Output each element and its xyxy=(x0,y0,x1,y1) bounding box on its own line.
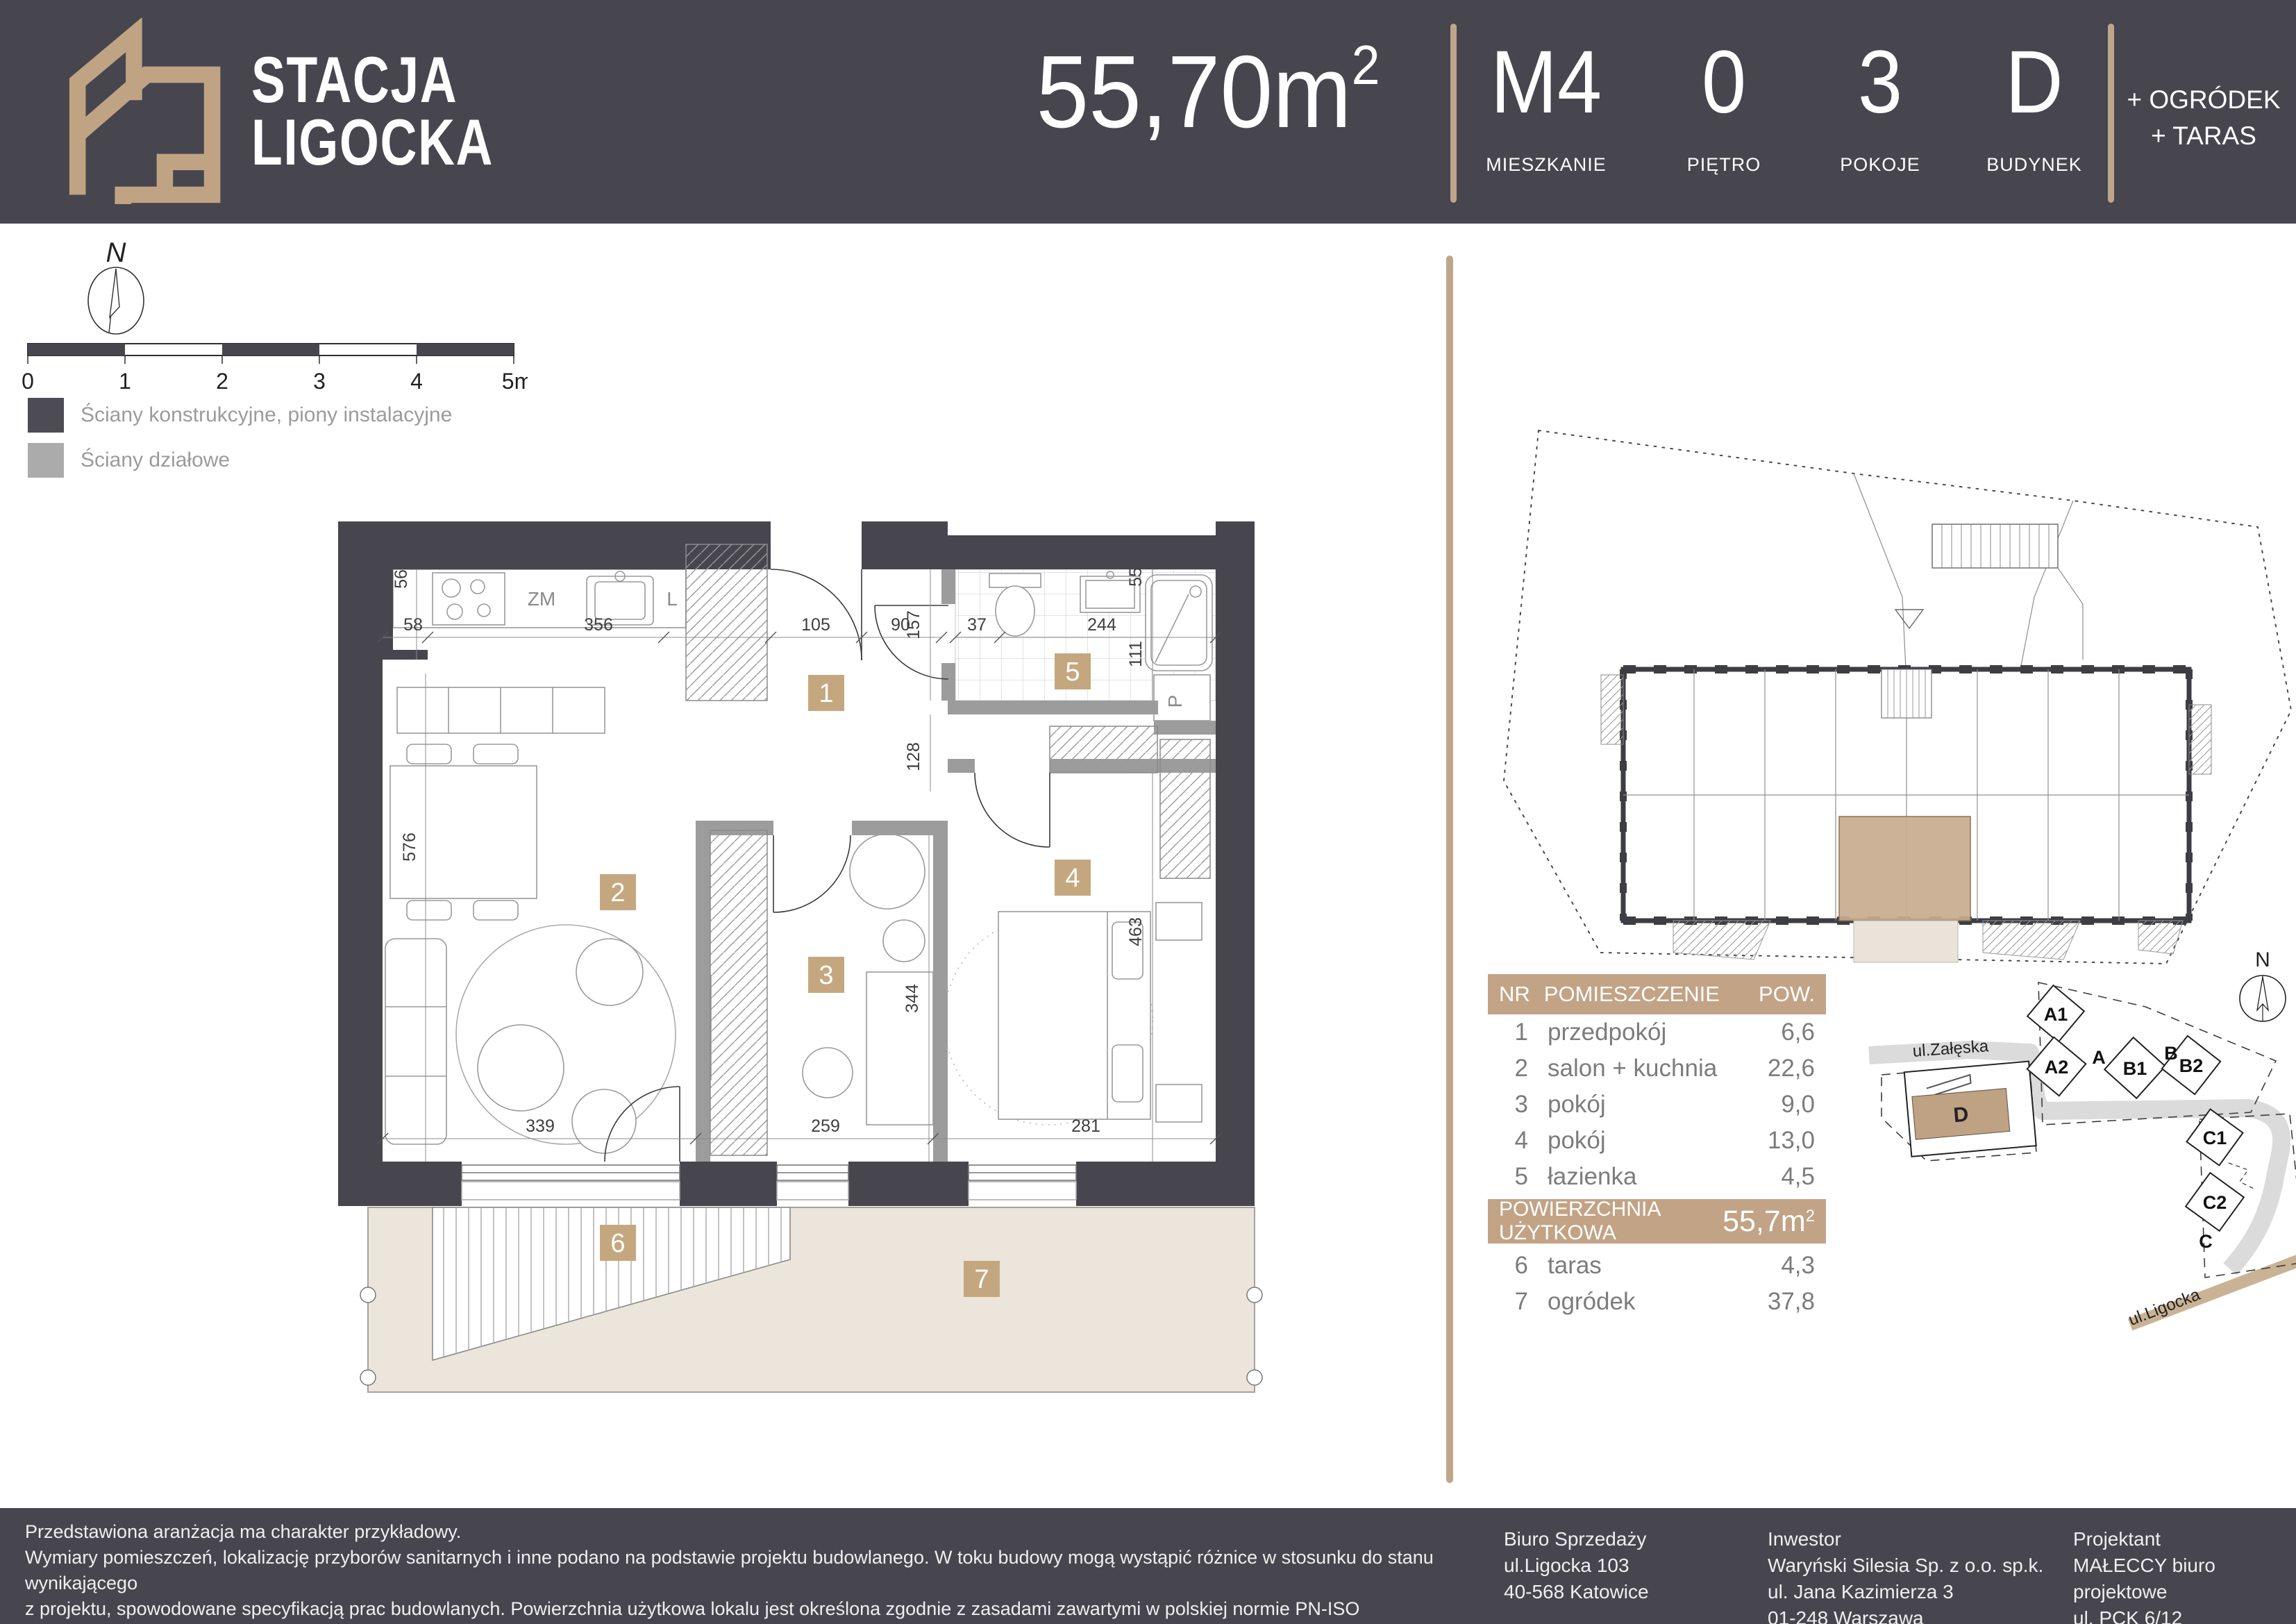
sofa xyxy=(385,939,446,1144)
row-name: pokój xyxy=(1548,1127,1606,1155)
row-name: pokój xyxy=(1548,1091,1606,1119)
row-nr: 1 xyxy=(1499,1019,1528,1046)
usable-area-sup: 2 xyxy=(1806,1207,1815,1225)
legend-partition-walls: Ściany działowe xyxy=(28,443,230,478)
site-location-map: D A1 A A2 B B1 B2 C1 C2 C ul.Załęska ul.… xyxy=(1868,944,2296,1409)
dim-55: 55 xyxy=(1126,567,1146,587)
apartment-area-title: 55,70m2 xyxy=(1023,33,1393,151)
flat-card-page: STACJA LIGOCKA 55,70m2 M4 MIESZKANIE 0 P… xyxy=(0,0,2296,1624)
designer-block: Projektant MAŁECCY biuro projektowe ul. … xyxy=(2073,1526,2296,1624)
desk xyxy=(866,972,933,1125)
map-compass-n: N xyxy=(2255,948,2270,971)
map-compass-icon: N xyxy=(2240,948,2286,1021)
designer-line: MAŁECCY biuro projektowe xyxy=(2073,1552,2296,1605)
badge-room-5: 5 xyxy=(1065,658,1080,687)
table-row: 5 łazienka 4,5 xyxy=(1488,1159,1826,1195)
usable-area-label: POWIERZCHNIA UŻYTKOWA xyxy=(1499,1198,1723,1245)
legend-partition-label: Ściany działowe xyxy=(81,449,230,472)
label-dishwasher: ZM xyxy=(528,588,555,610)
dim-58: 58 xyxy=(403,615,423,635)
table-row: 1 przedpokój 6,6 xyxy=(1488,1014,1826,1050)
dim-463: 463 xyxy=(1126,917,1146,946)
badge-room-1: 1 xyxy=(819,679,833,708)
sales-office-line: ul.Ligocka 103 xyxy=(1504,1552,1649,1579)
header-extras: + OGRÓDEK + TARAS xyxy=(2115,82,2293,154)
row-nr: 3 xyxy=(1499,1091,1528,1119)
label-b2: B2 xyxy=(2179,1055,2204,1076)
dim-281: 281 xyxy=(1071,1116,1100,1136)
legend-structural-walls: Ściany konstrukcyjne, piony instalacyjne xyxy=(28,398,452,433)
badge-room-6: 6 xyxy=(610,1229,625,1258)
col-name: POMIESZCZENIE xyxy=(1544,982,1720,1007)
disclaimer-text: Przedstawiona aranżacja ma charakter prz… xyxy=(25,1519,1434,1624)
stat-budynek: D BUDYNEK xyxy=(1930,31,2138,176)
table-row: 6 taras 4,3 xyxy=(1488,1248,1826,1284)
dim-356: 356 xyxy=(584,615,613,635)
usable-area-band: POWIERZCHNIA UŻYTKOWA 55,7m2 xyxy=(1488,1199,1826,1244)
label-a2: A2 xyxy=(2045,1057,2069,1078)
label-c1: C1 xyxy=(2203,1128,2227,1148)
sales-office-line: 40-568 Katowice xyxy=(1504,1579,1649,1605)
scale-tick-0: 0 xyxy=(22,369,34,394)
badge-room-7: 7 xyxy=(974,1265,989,1294)
legend-structural-swatch xyxy=(28,398,64,433)
stat-mieszkanie-label: MIESZKANIE xyxy=(1442,154,1650,176)
row-nr: 6 xyxy=(1499,1252,1528,1280)
content-divider xyxy=(1446,256,1453,1483)
stat-budynek-value: D xyxy=(1941,31,2128,135)
label-washer: P xyxy=(1164,695,1186,708)
investor-line: ul. Jana Kazimierza 3 xyxy=(1768,1579,2043,1605)
dining-table xyxy=(390,766,537,898)
designer-line: ul. PCK 6/12 xyxy=(2073,1605,2296,1624)
row-nr: 5 xyxy=(1499,1163,1528,1191)
area-value: 55,70m xyxy=(1036,35,1351,149)
floor-plan: 56 58 356 105 90 157 37 244 55 111 128 5… xyxy=(312,486,1319,1624)
sales-office-line: Biuro Sprzedaży xyxy=(1504,1526,1649,1552)
scale-tick-5: 5m xyxy=(502,369,528,394)
row-area: 4,3 xyxy=(1781,1252,1815,1280)
footer-bar: Przedstawiona aranżacja ma charakter prz… xyxy=(0,1508,2296,1624)
badge-room-2: 2 xyxy=(610,878,625,907)
row-nr: 4 xyxy=(1499,1127,1528,1155)
investor-block: Inwestor Waryński Silesia Sp. z o.o. sp.… xyxy=(1768,1526,2043,1624)
building-d: D xyxy=(1904,1062,2036,1157)
stat-mieszkanie-value: M4 xyxy=(1452,31,1640,135)
table-row: 3 pokój 9,0 xyxy=(1488,1087,1826,1123)
header-bar: STACJA LIGOCKA 55,70m2 M4 MIESZKANIE 0 P… xyxy=(0,0,2296,224)
label-a1: A1 xyxy=(2044,1004,2068,1025)
dim-128: 128 xyxy=(904,742,923,771)
extra-taras: + TARAS xyxy=(2115,118,2293,154)
logo-line-2: LIGOCKA xyxy=(251,111,494,174)
dim-111: 111 xyxy=(1126,641,1146,667)
scale-tick-4: 4 xyxy=(410,369,423,394)
sales-office-block: Biuro Sprzedaży ul.Ligocka 103 40-568 Ka… xyxy=(1504,1526,1649,1605)
compass-n-label: N xyxy=(106,240,126,268)
row-area: 6,6 xyxy=(1781,1019,1815,1046)
dim-344: 344 xyxy=(903,984,922,1013)
highlighted-unit xyxy=(1839,817,1970,921)
usable-area-value: 55,7m2 xyxy=(1723,1205,1815,1239)
dim-259: 259 xyxy=(811,1116,840,1136)
col-nr: NR xyxy=(1499,982,1530,1007)
logo-text: STACJA LIGOCKA xyxy=(251,49,494,174)
row-name: taras xyxy=(1548,1252,1602,1280)
row-nr: 7 xyxy=(1499,1288,1528,1316)
row-nr: 2 xyxy=(1499,1055,1528,1082)
label-c2: C2 xyxy=(2203,1192,2227,1213)
disclaimer-line: z projektu, spowodowane specyfikacją pra… xyxy=(25,1596,1434,1624)
row-area: 9,0 xyxy=(1781,1091,1815,1119)
dim-56: 56 xyxy=(392,569,411,589)
rooms-table: NR POMIESZCZENIE POW. 1 przedpokój 6,6 2… xyxy=(1488,974,1826,1320)
disclaimer-line: Wymiary pomieszczeń, lokalizację przybor… xyxy=(25,1545,1434,1596)
rooms-table-header: NR POMIESZCZENIE POW. xyxy=(1488,974,1826,1014)
row-area: 37,8 xyxy=(1768,1288,1815,1316)
site-stairs xyxy=(1932,524,2083,660)
dim-37: 37 xyxy=(967,615,987,635)
row-name: łazienka xyxy=(1548,1163,1636,1191)
label-a: A xyxy=(2092,1047,2106,1068)
legend-partition-swatch xyxy=(28,443,64,478)
disclaimer-line: Przedstawiona aranżacja ma charakter prz… xyxy=(25,1519,1434,1545)
header-divider-right xyxy=(2108,24,2114,203)
dim-157: 157 xyxy=(904,610,923,639)
col-area: POW. xyxy=(1759,982,1815,1007)
logo-icon xyxy=(52,18,234,204)
investor-line: Inwestor xyxy=(1768,1526,2043,1552)
compass-north-icon: N xyxy=(66,240,170,344)
rug xyxy=(456,925,676,1144)
row-area: 4,5 xyxy=(1781,1163,1815,1191)
row-area: 13,0 xyxy=(1768,1127,1815,1155)
extra-ogrodek: + OGRÓDEK xyxy=(2115,82,2293,118)
table-row: 4 pokój 13,0 xyxy=(1488,1123,1826,1159)
dim-105: 105 xyxy=(801,615,830,635)
logo-line-1: STACJA xyxy=(251,49,494,111)
scale-tick-3: 3 xyxy=(313,369,326,394)
badge-room-3: 3 xyxy=(819,961,833,990)
building-overview-plan xyxy=(1479,389,2296,965)
row-name: salon + kuchnia xyxy=(1548,1055,1717,1082)
dim-244: 244 xyxy=(1087,615,1116,635)
investor-line: 01-248 Warszawa xyxy=(1768,1605,2043,1624)
usable-area-number: 55,7m xyxy=(1723,1205,1806,1238)
label-b: B xyxy=(2164,1043,2178,1064)
toilet xyxy=(989,574,1041,587)
dim-339: 339 xyxy=(526,1116,555,1136)
row-name: przedpokój xyxy=(1548,1019,1666,1046)
label-b1: B1 xyxy=(2123,1058,2147,1079)
row-area: 22,6 xyxy=(1768,1055,1815,1082)
investor-line: Waryński Silesia Sp. z o.o. sp.k. xyxy=(1768,1552,2043,1579)
table-row: 7 ogródek 37,8 xyxy=(1488,1284,1826,1320)
badge-room-4: 4 xyxy=(1065,864,1080,893)
dim-576: 576 xyxy=(400,832,419,862)
label-c: C xyxy=(2199,1231,2213,1252)
shower xyxy=(1146,575,1212,671)
stat-mieszkanie: M4 MIESZKANIE xyxy=(1442,31,1650,176)
designer-line: Projektant xyxy=(2073,1526,2296,1552)
label-fridge: L xyxy=(667,588,678,610)
legend-structural-label: Ściany konstrukcyjne, piony instalacyjne xyxy=(81,403,452,427)
area-sup: 2 xyxy=(1352,34,1380,96)
stat-budynek-label: BUDYNEK xyxy=(1930,154,2138,176)
scale-bar: 0 1 2 3 4 5m xyxy=(21,333,528,399)
scale-tick-1: 1 xyxy=(119,369,131,394)
row-name: ogródek xyxy=(1548,1288,1635,1316)
table-row: 2 salon + kuchnia 22,6 xyxy=(1488,1050,1826,1087)
scale-tick-2: 2 xyxy=(216,369,228,394)
stove xyxy=(433,573,505,625)
building-d-label: D xyxy=(1952,1103,1969,1127)
